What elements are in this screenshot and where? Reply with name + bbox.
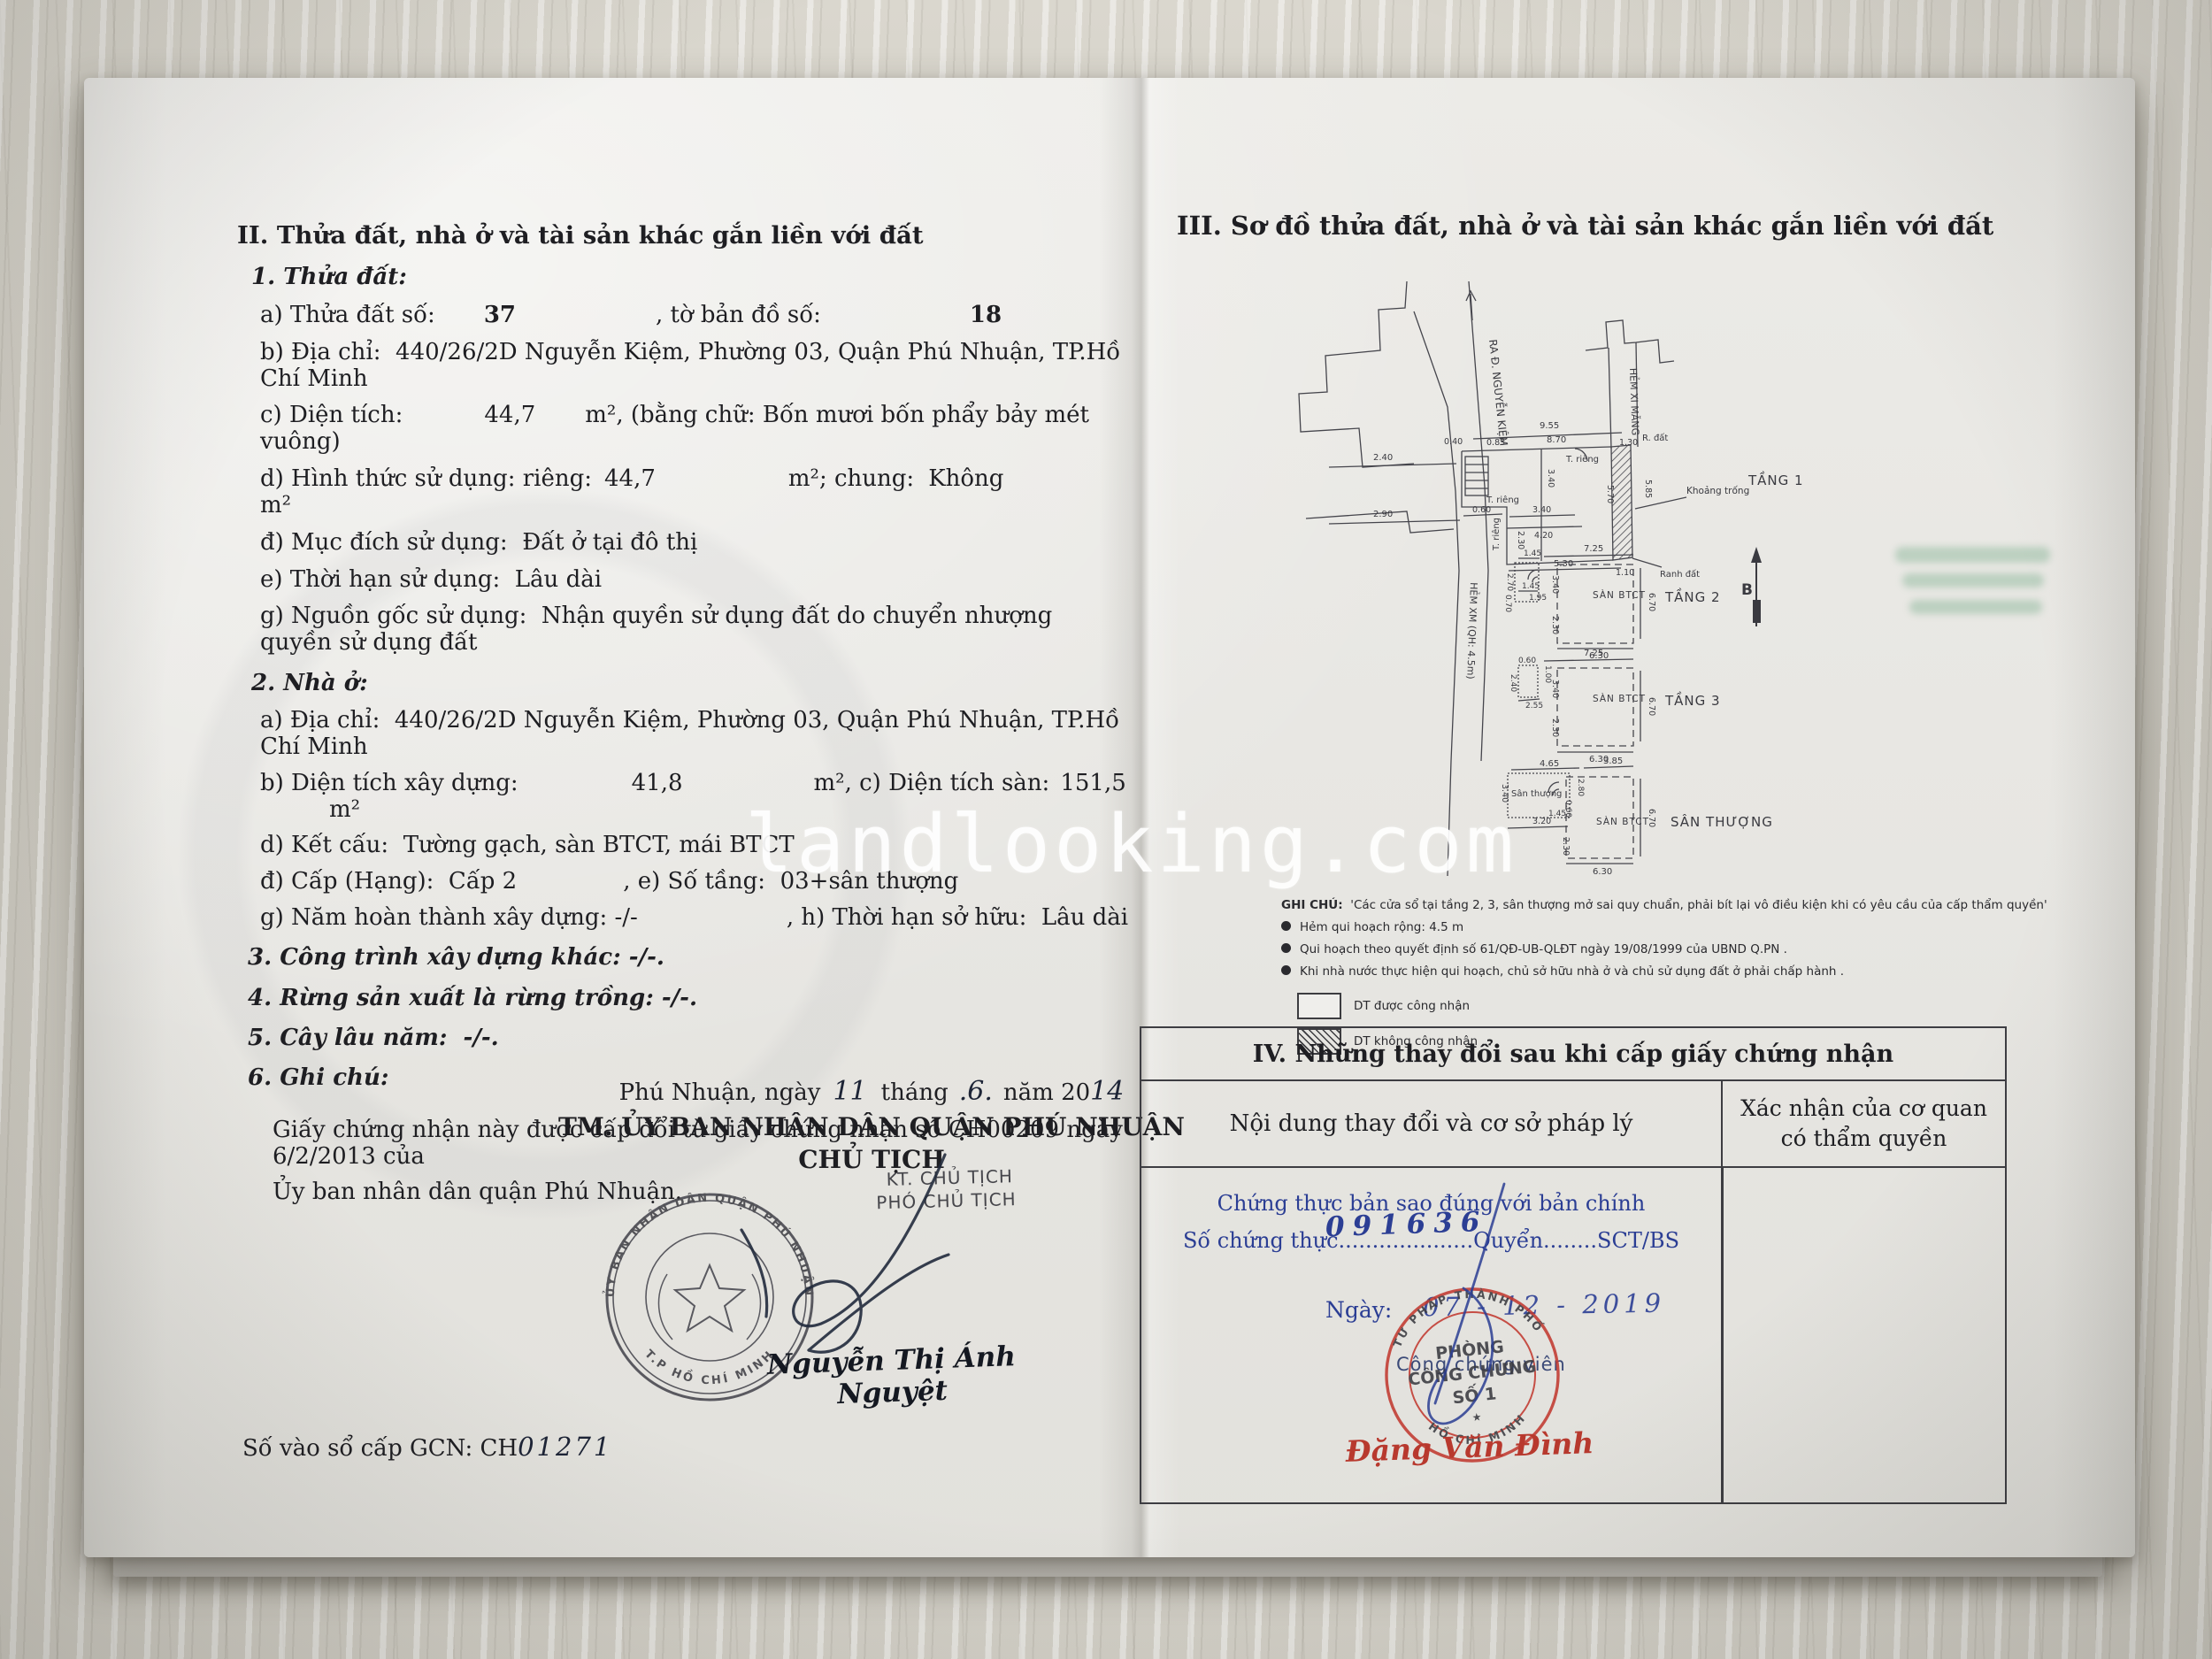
dim-label: 5.70 xyxy=(1605,485,1615,503)
parcel-line-a: a) Thửa đất số:37, tờ bản đồ số:18 xyxy=(237,302,1131,328)
dim-label: 6.70 xyxy=(1647,697,1656,716)
dim-label: 2.30 xyxy=(1550,718,1560,737)
deputy-line: PHÓ CHỦ TỊCH xyxy=(876,1187,1017,1214)
north-arrow-icon: B xyxy=(1741,547,1762,626)
kt-line: KT. CHỦ TỊCH xyxy=(886,1164,1016,1191)
date-line: Phú Nhuận, ngày11tháng.6.năm 2014 xyxy=(553,1076,1190,1107)
stamp-line3: SỐ 1 xyxy=(1451,1380,1497,1408)
dim-label: 7.25 xyxy=(1584,544,1603,554)
parcel-line-g: g) Nguồn gốc sử dụng: Nhận quyền sử dụng… xyxy=(237,603,1131,656)
item4: 4. Rừng sản xuất là rừng trồng: -/-. xyxy=(237,985,1131,1011)
parcel-line-e: e) Thời hạn sử dụng: Lâu dài xyxy=(237,566,1131,593)
dim-label: 0.40 xyxy=(1444,437,1463,447)
dim-label: 0.70 xyxy=(1503,595,1512,612)
house-line-g: g) Năm hoàn thành xây dựng: -/-, h) Thời… xyxy=(237,904,1131,931)
bleedthrough-mark xyxy=(1902,573,2044,588)
table-header-row: Nội dung thay đổi và cơ sở pháp lý Xác n… xyxy=(1141,1081,2005,1168)
gcn-book-number: Số vào sổ cấp GCN: CH01271 xyxy=(242,1432,612,1462)
house-heading: 2. Nhà ở: xyxy=(237,670,1131,696)
private-wall-label: T. riêng xyxy=(1486,495,1519,505)
col-header-confirmation: Xác nhận của cơ quancó thẩm quyền xyxy=(1723,1081,2005,1166)
note-bullet-2: Qui hoạch theo quyết định số 61/QĐ-UB-QL… xyxy=(1281,942,1998,956)
floor1-label: TẦNG 1 xyxy=(1747,470,1804,488)
dim-label: 2.40 xyxy=(1509,674,1517,692)
legend-swatch-plain xyxy=(1297,993,1341,1019)
dim-label: 1.45 xyxy=(1524,549,1541,558)
bullet-icon xyxy=(1281,943,1291,953)
notary-signer-name: Đặng Văn Đình xyxy=(1314,1425,1624,1470)
dim-label: 4.65 xyxy=(1540,759,1559,769)
site-watermark: landlooking.com xyxy=(745,798,1517,891)
bleedthrough-mark xyxy=(1895,547,2050,563)
handwritten-book-number: 01271 xyxy=(518,1432,612,1462)
dim-label: 3.20 xyxy=(1532,817,1551,826)
dim-label: 2.55 xyxy=(1525,702,1543,710)
committee-line: TM. ỦY BAN NHÂN DÂN QUẬN PHÚ NHUẬN xyxy=(553,1112,1190,1141)
parcel-heading: 1. Thửa đất: xyxy=(237,264,1131,290)
dim-label: 2.90 xyxy=(1373,510,1393,519)
stamp-line1: PHÒNG xyxy=(1434,1335,1505,1363)
dim-label: 2.30 xyxy=(1561,837,1571,856)
parcel-number: 37 xyxy=(484,302,516,328)
column-divider xyxy=(1721,1168,1724,1502)
dim-label: 3.40 xyxy=(1550,575,1560,594)
dim-label: 4.20 xyxy=(1534,531,1553,541)
handwritten-month: .6. xyxy=(959,1076,993,1107)
handwritten-cert-number: 091636 xyxy=(1325,1206,1488,1243)
street-label: RA Đ. NGUYỄN KIỆM xyxy=(1486,339,1512,447)
dim-label: 8.70 xyxy=(1547,435,1566,445)
dim-label: 3.40 xyxy=(1550,680,1560,698)
floor-area: 151,5 xyxy=(1060,770,1125,796)
signer-name: Nguyễn Thị Ánh Nguyệt xyxy=(749,1340,1034,1413)
dim-label: 2.30 xyxy=(1550,616,1560,634)
svg-text:ỦY BAN NHÂN DÂN QUẬN PHÚ NHUẬN: ỦY BAN NHÂN DÂN QUẬN PHÚ NHUẬN xyxy=(603,1192,815,1298)
slab-label: SÀN BTCT xyxy=(1593,589,1646,601)
bullet-icon xyxy=(1281,921,1291,931)
handwritten-day: 11 xyxy=(833,1076,866,1107)
item3: 3. Công trình xây dựng khác: -/-. xyxy=(237,944,1131,971)
legend-recognized: DT được công nhận xyxy=(1297,993,1998,1019)
alley-label: HẺM XI MĂNG xyxy=(1627,368,1642,436)
section2-title: II. Thửa đất, nhà ở và tài sản khác gắn … xyxy=(237,221,1131,250)
floor3-label: TẦNG 3 xyxy=(1664,690,1721,709)
handwritten-year: 14 xyxy=(1090,1076,1124,1107)
map-sheet-number: 18 xyxy=(970,302,1002,328)
item5: 5. Cây lâu năm: -/-. xyxy=(237,1025,1131,1051)
kt-stamp-text: KT. CHỦ TỊCH PHÓ CHỦ TỊCH xyxy=(886,1164,1017,1214)
dim-label: 7.25 xyxy=(1584,649,1603,658)
changes-table: IV. Những thay đổi sau khi cấp giấy chứn… xyxy=(1140,1026,2007,1504)
dim-label: 0.60 xyxy=(1518,657,1536,665)
dim-label: 1.45 xyxy=(1522,582,1540,591)
seal-ring-top: ỦY BAN NHÂN DÂN QUẬN PHÚ NHUẬN xyxy=(603,1192,815,1298)
dim-label: 3.85 xyxy=(1603,757,1623,766)
photo-of-land-certificate: { "watermark": "landlooking.com", "left"… xyxy=(0,0,2212,1659)
dim-label: 5.85 xyxy=(1643,480,1653,498)
section3-title: III. Sơ đồ thửa đất, nhà ở và tài sản kh… xyxy=(1177,211,1993,241)
house-line-a: a) Địa chỉ: 440/26/2D Nguyễn Kiệm, Phườn… xyxy=(237,707,1131,760)
dim-label: 3.40 xyxy=(1532,505,1551,515)
parcel-line-d: d) Hình thức sử dụng: riêng:44,7m²; chun… xyxy=(237,465,1131,518)
build-area: 41,8 xyxy=(632,770,683,796)
roof-label: SÂN THƯỢNG xyxy=(1671,813,1773,830)
notes-title-line: GHI CHÚ: 'Các cửa sổ tại tầng 2, 3, sân … xyxy=(1281,898,1998,912)
dim-label: 2.30 xyxy=(1516,531,1525,549)
north-label: B xyxy=(1741,581,1753,599)
table-title: IV. Những thay đổi sau khi cấp giấy chứn… xyxy=(1141,1028,2005,1081)
dim-label: 2.40 xyxy=(1373,453,1393,463)
terrace-label: Sân thượng xyxy=(1511,788,1562,799)
note-bullet-3: Khi nhà nước thực hiện qui hoạch, chủ sở… xyxy=(1281,964,1998,979)
land-boundary-label: R. đất xyxy=(1642,433,1668,443)
dim-label: 0.60 xyxy=(1472,505,1491,515)
notes-quote: 'Các cửa sổ tại tầng 2, 3, sân thượng mở… xyxy=(1350,898,2047,912)
seal-star-icon xyxy=(675,1265,744,1331)
private-wall-label: T. riêng xyxy=(1565,454,1599,465)
slab-label: SÀN BTCT xyxy=(1593,693,1646,704)
land-area: 44,7 xyxy=(484,402,535,428)
bullet-icon xyxy=(1281,965,1291,975)
dim-label: 3.40 xyxy=(1546,469,1555,488)
alley2-label: HẺM XM (QH: 4.5m) xyxy=(1464,582,1480,680)
parcel-line-dd: đ) Mục đích sử dụng: Đất ở tại đô thị xyxy=(237,529,1131,556)
dim-label: 1.30 xyxy=(1619,438,1638,448)
dim-label: 6.30 xyxy=(1593,867,1612,877)
void-label: Khoảng trống xyxy=(1686,486,1749,496)
stamp-star-icon: ★ xyxy=(1471,1410,1482,1424)
dim-label: 2.80 xyxy=(1576,779,1585,796)
page-left: II. Thửa đất, nhà ở và tài sản khác gắn … xyxy=(237,221,1131,1205)
dim-label: 1.10 xyxy=(1616,568,1634,578)
dim-label: 0.85 xyxy=(1486,438,1505,448)
parcel-line-b: b) Địa chỉ: 440/26/2D Nguyễn Kiệm, Phườn… xyxy=(237,339,1131,392)
bleedthrough-mark xyxy=(1909,600,2042,614)
stamp-line2: CÔNG CHỨNG xyxy=(1407,1355,1537,1389)
parcel-line-c: c) Diện tích:44,7m², (bằng chữ: Bốn mươi… xyxy=(237,402,1131,455)
dim-label: 9.55 xyxy=(1540,421,1559,431)
dim-label: 2.70 xyxy=(1505,573,1514,591)
slab-label: SÀN BTCT xyxy=(1596,816,1649,827)
private-wall-label: T. riêng xyxy=(1491,518,1502,551)
dim-label: 6.70 xyxy=(1647,593,1656,611)
signature-block: Phú Nhuận, ngày11tháng.6.năm 2014 TM. ỦY… xyxy=(553,1076,1190,1174)
boundary-label: Ranh đất xyxy=(1660,569,1700,580)
col-header-content: Nội dung thay đổi và cơ sở pháp lý xyxy=(1141,1081,1723,1166)
floor2-label: TẦNG 2 xyxy=(1664,587,1721,605)
table-body-row: Chứng thực bản sao đúng với bản chính Số… xyxy=(1141,1168,2005,1502)
dim-label: 1.95 xyxy=(1529,594,1547,603)
note-bullet-1: Hẻm qui hoạch rộng: 4.5 m xyxy=(1281,920,1998,934)
